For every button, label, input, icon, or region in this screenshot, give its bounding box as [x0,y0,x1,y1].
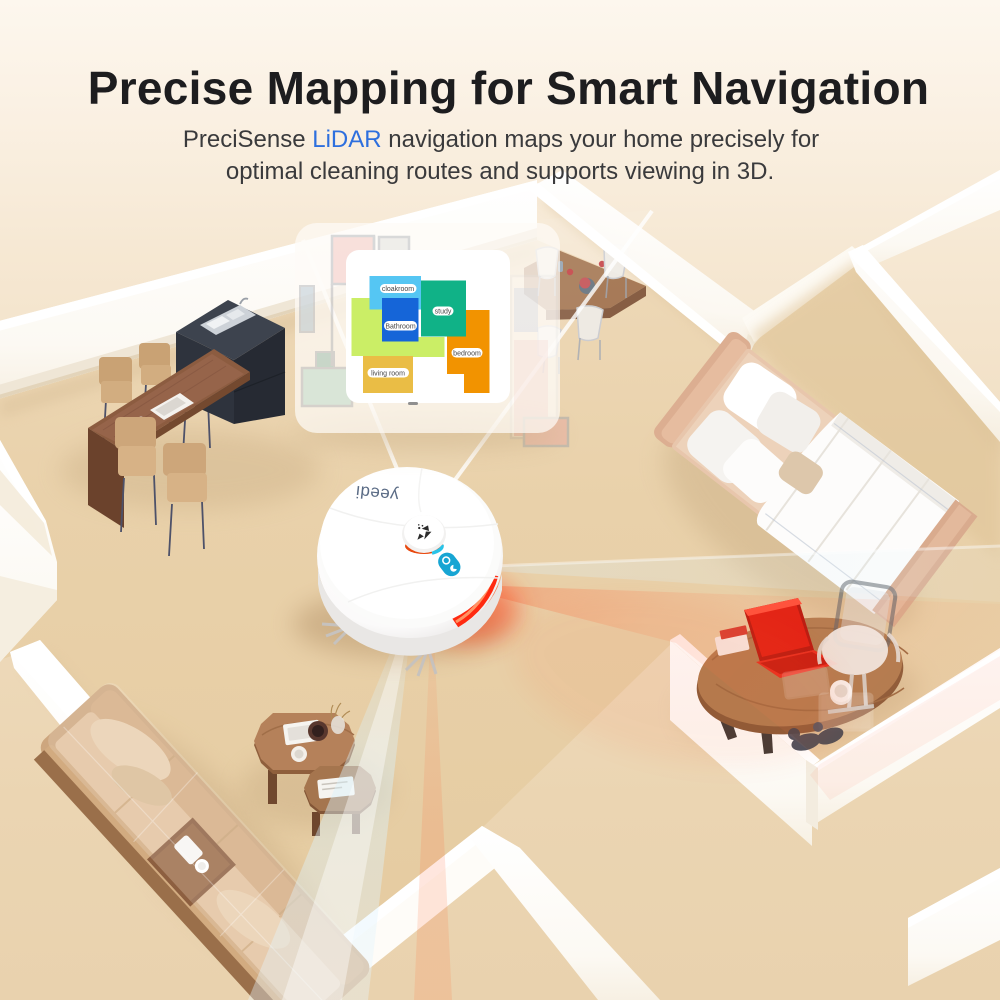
svg-text:Bathroom: Bathroom [385,324,416,331]
svg-text:bedroom: bedroom [453,351,481,358]
svg-text:study: study [435,309,452,316]
svg-text:cloakroom: cloakroom [382,286,414,293]
svg-text:living room: living room [371,371,405,378]
